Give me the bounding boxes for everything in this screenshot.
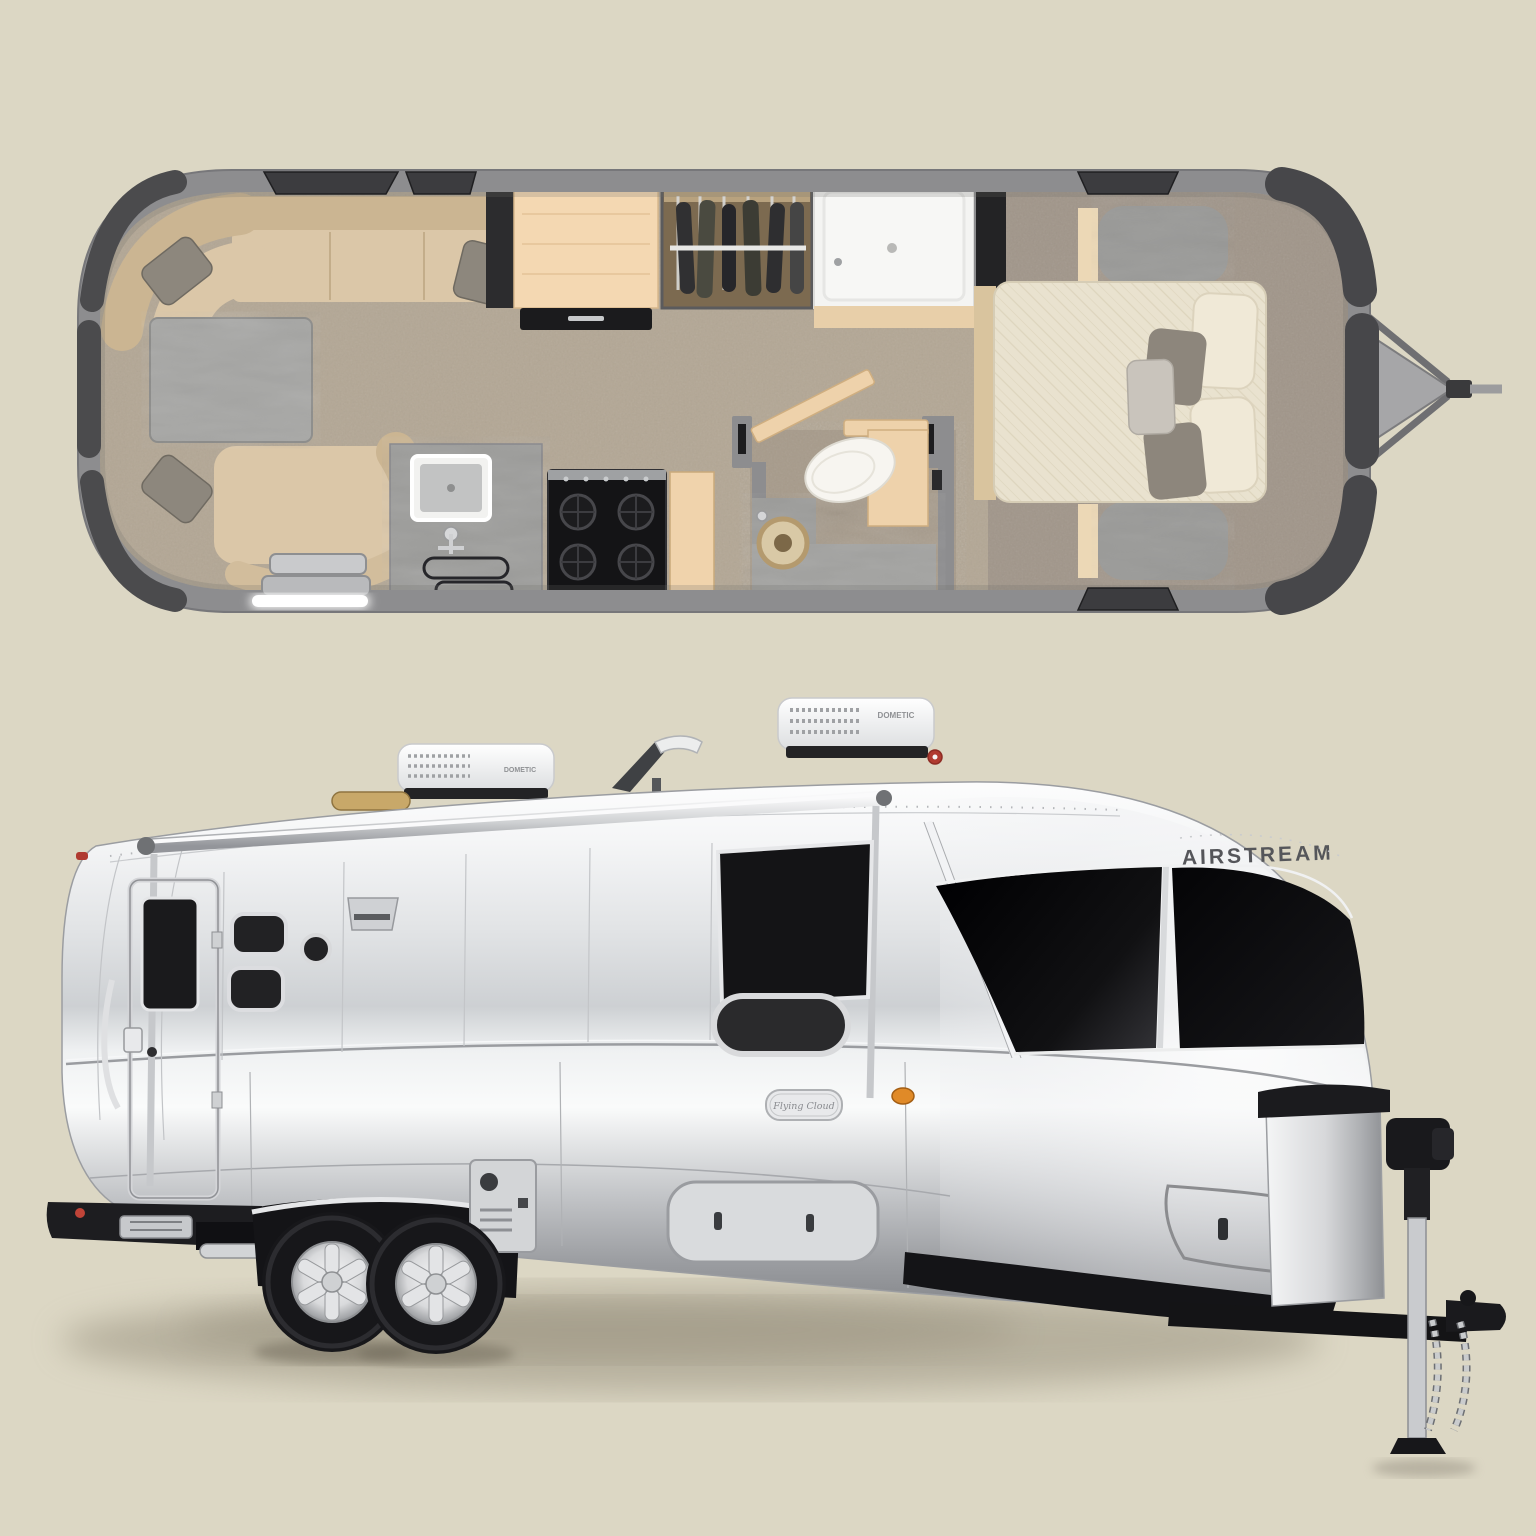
nightstand [1078,208,1098,282]
front-marker-amber [892,1088,914,1104]
bed [994,282,1266,502]
door-hinge [212,932,222,948]
shower [814,184,974,308]
shower-drain [887,243,897,253]
flying-cloud-badge: Flying Cloud [766,1090,842,1120]
rear-marker-red [76,852,88,860]
bumper-step [120,1216,192,1238]
ac-rear-brand: DOMETIC [504,767,536,774]
door-hinge [738,424,746,454]
floorplan-interior [90,184,1360,612]
skylight-vent [332,792,410,810]
shower-ledge [814,306,974,328]
dinette-table [150,318,312,442]
bed-throw [974,286,996,500]
propane-cover [1258,1084,1390,1306]
porthole-window [302,935,330,963]
overhead-cabinet [514,184,658,330]
ac-unit-rear: DOMETIC [398,744,554,799]
oval-window [714,996,848,1054]
scene-canvas: DOMETIC DOMETIC [0,0,1536,1536]
coupler [1446,1300,1506,1332]
storage-hatch [668,1182,878,1262]
door-hinge [212,1092,222,1108]
door-latch [124,1028,142,1052]
nightstand [1078,504,1098,578]
scene: DOMETIC DOMETIC [0,0,1536,1536]
wheel-front [366,1214,506,1354]
lounge-window [718,842,872,1004]
galley-sink-counter [390,444,542,594]
lumbar-pillow [1127,359,1176,435]
floor-plan [78,170,1502,612]
stove-cooktop [548,470,666,594]
wardrobe [662,184,812,308]
door-window [142,898,198,1010]
side-cabinet [486,184,514,308]
ac-unit-front: DOMETIC [778,698,934,758]
ac-front-brand: DOMETIC [878,711,915,720]
model-badge-text: Flying Cloud [772,1101,834,1112]
